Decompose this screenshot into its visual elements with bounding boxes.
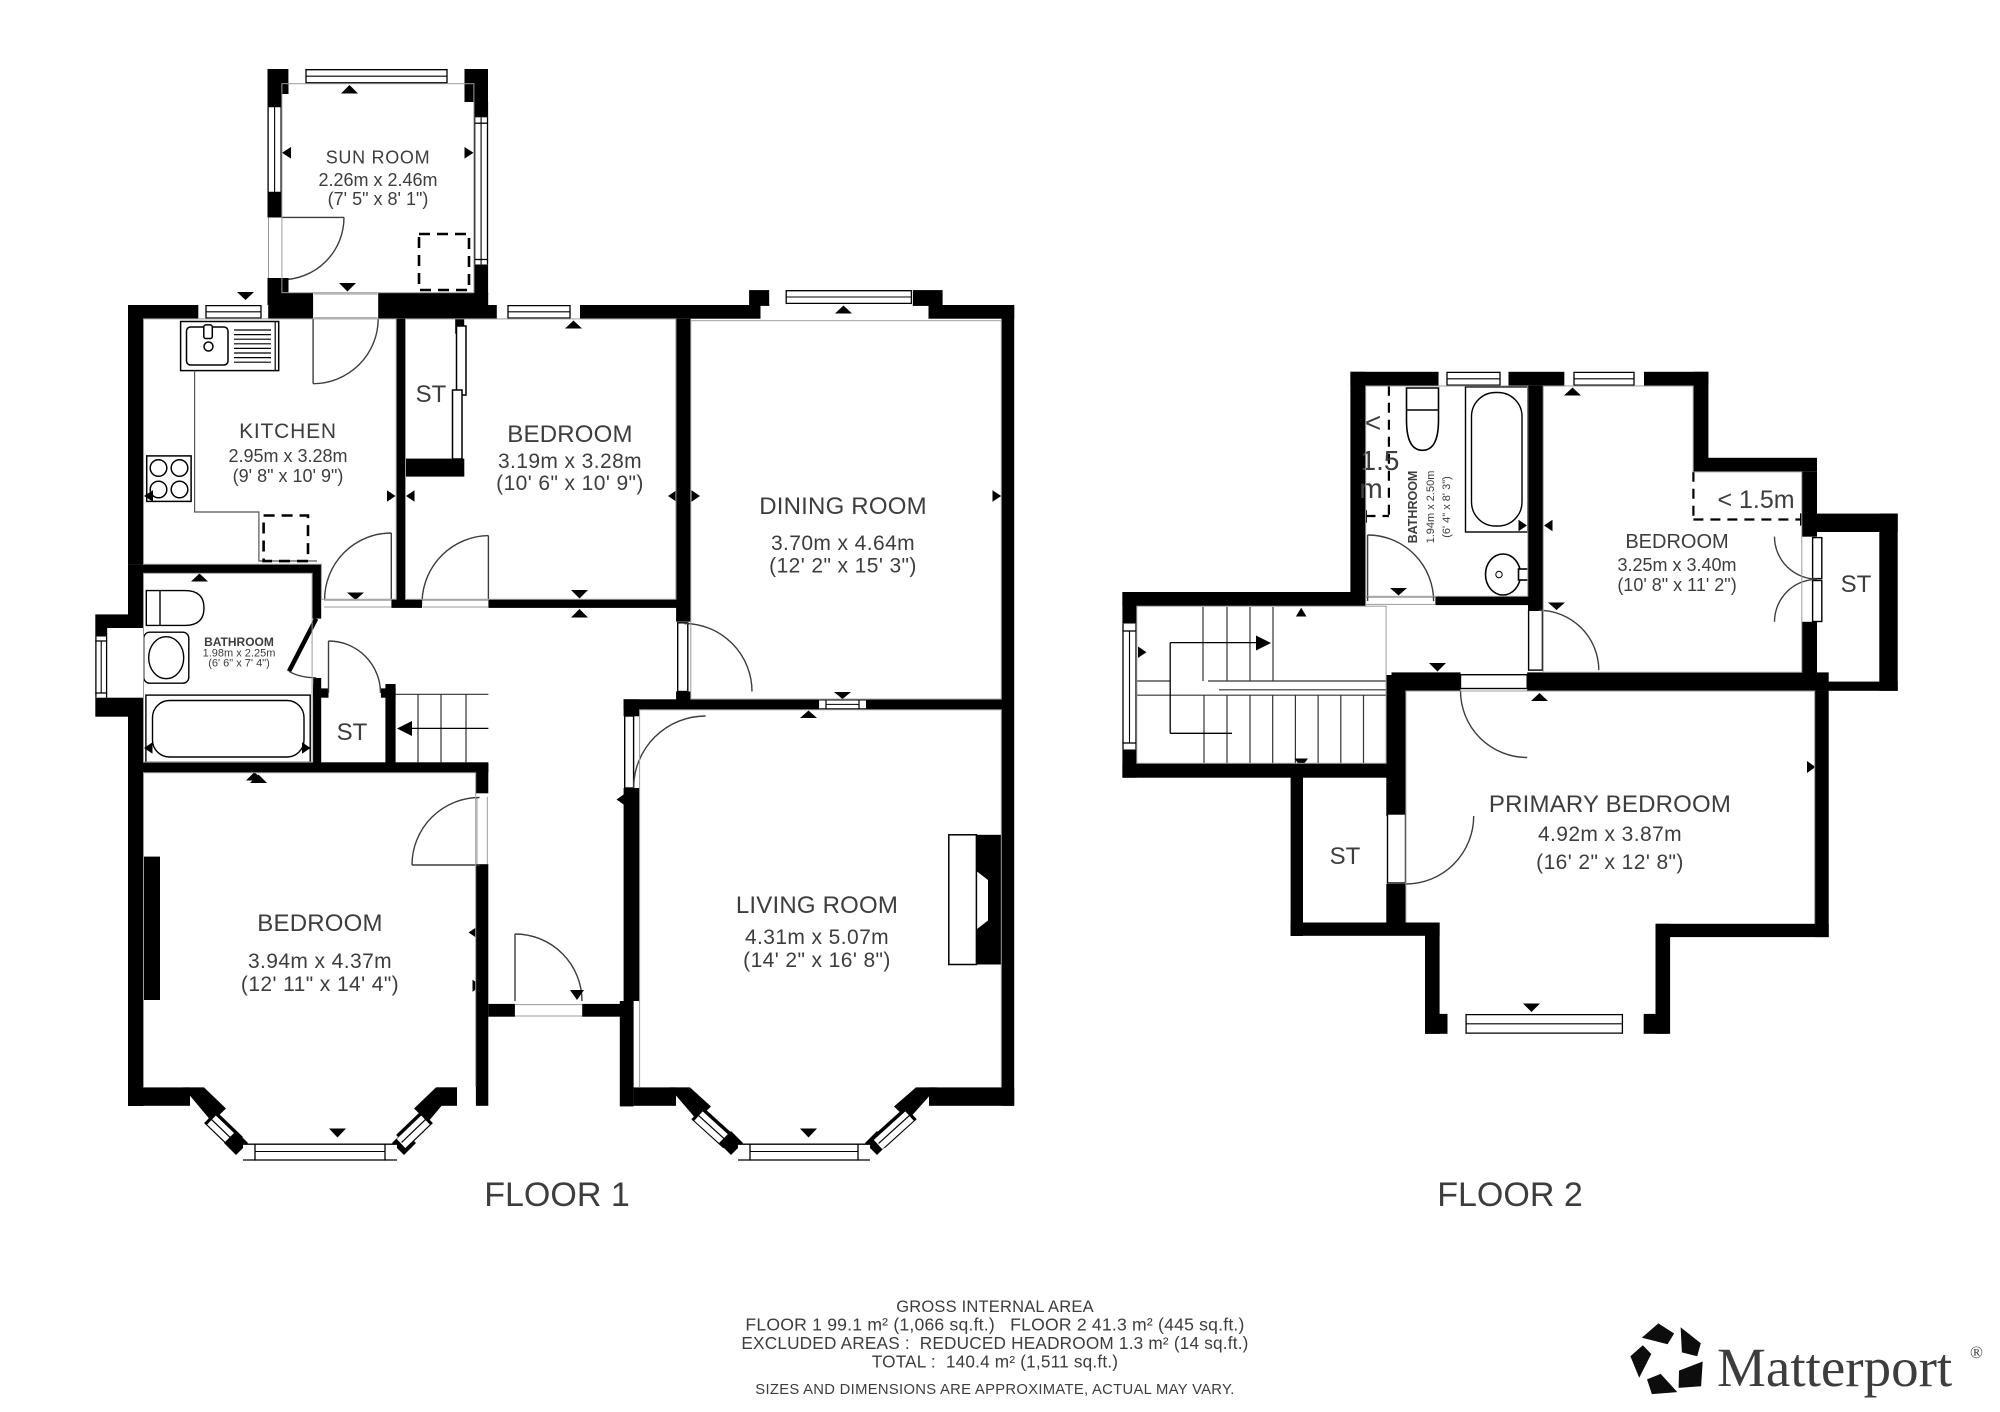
svg-text:LIVING ROOM: LIVING ROOM bbox=[736, 892, 898, 919]
svg-text:ST: ST bbox=[337, 719, 368, 746]
svg-text:3.19m x 3.28m: 3.19m x 3.28m bbox=[498, 450, 642, 473]
svg-text:(14' 2" x 16' 8"): (14' 2" x 16' 8") bbox=[743, 949, 891, 972]
svg-text:FLOOR 2: FLOOR 2 bbox=[1437, 1176, 1582, 1214]
svg-text:BEDROOM: BEDROOM bbox=[1625, 531, 1728, 553]
svg-text:(6' 6" x 7' 4"): (6' 6" x 7' 4") bbox=[208, 658, 270, 670]
svg-text:3.25m x 3.40m: 3.25m x 3.40m bbox=[1617, 555, 1736, 575]
svg-text:1.94m x 2.50m: 1.94m x 2.50m bbox=[1425, 471, 1437, 544]
svg-text:ST: ST bbox=[1841, 571, 1872, 598]
svg-text:FLOOR 1 99.1 m² (1,066 sq.ft.): FLOOR 1 99.1 m² (1,066 sq.ft.) FLOOR 2 4… bbox=[745, 1315, 1244, 1335]
svg-text:(9' 8" x 10' 9"): (9' 8" x 10' 9") bbox=[233, 466, 344, 486]
svg-text:SIZES AND DIMENSIONS ARE APPRO: SIZES AND DIMENSIONS ARE APPROXIMATE, AC… bbox=[755, 1382, 1234, 1398]
svg-text:4.92m x 3.87m: 4.92m x 3.87m bbox=[1538, 823, 1682, 846]
svg-text:®: ® bbox=[1970, 1343, 1983, 1362]
svg-text:FLOOR 1: FLOOR 1 bbox=[484, 1176, 629, 1214]
svg-text:ST: ST bbox=[416, 381, 447, 408]
svg-text:(12' 2" x 15' 3"): (12' 2" x 15' 3") bbox=[769, 555, 917, 578]
svg-text:(10' 8" x 11' 2"): (10' 8" x 11' 2") bbox=[1617, 575, 1736, 595]
svg-text:m: m bbox=[1359, 473, 1382, 504]
svg-text:<: < bbox=[1365, 407, 1381, 438]
svg-text:BEDROOM: BEDROOM bbox=[257, 910, 382, 937]
svg-text:(16' 2" x 12' 8"): (16' 2" x 12' 8") bbox=[1536, 851, 1684, 874]
svg-text:BATHROOM: BATHROOM bbox=[1406, 471, 1420, 544]
svg-text:2.26m x 2.46m: 2.26m x 2.46m bbox=[318, 170, 437, 190]
svg-text:DINING ROOM: DINING ROOM bbox=[759, 493, 927, 520]
svg-text:GROSS INTERNAL AREA: GROSS INTERNAL AREA bbox=[896, 1298, 1094, 1316]
svg-text:< 1.5m: < 1.5m bbox=[1717, 486, 1794, 514]
svg-text:SUN ROOM: SUN ROOM bbox=[326, 148, 431, 168]
svg-text:2.95m x 3.28m: 2.95m x 3.28m bbox=[228, 446, 347, 466]
svg-text:EXCLUDED AREAS : REDUCED HEAD: EXCLUDED AREAS : REDUCED HEADROOM 1.3 m²… bbox=[741, 1333, 1248, 1353]
svg-text:TOTAL : 140.4 m² (1,511 sq.ft: TOTAL : 140.4 m² (1,511 sq.ft.) bbox=[872, 1352, 1118, 1372]
svg-text:BEDROOM: BEDROOM bbox=[507, 421, 632, 448]
svg-text:(7' 5" x 8' 1"): (7' 5" x 8' 1") bbox=[328, 189, 429, 209]
svg-text:PRIMARY BEDROOM: PRIMARY BEDROOM bbox=[1489, 791, 1731, 818]
svg-text:ST: ST bbox=[1330, 843, 1361, 870]
svg-text:KITCHEN: KITCHEN bbox=[239, 420, 337, 443]
svg-text:(6' 4" x 8' 3"): (6' 4" x 8' 3") bbox=[1441, 476, 1453, 538]
svg-text:1.5: 1.5 bbox=[1361, 445, 1400, 476]
svg-text:3.70m x 4.64m: 3.70m x 4.64m bbox=[771, 532, 915, 555]
svg-text:(12' 11" x 14' 4"): (12' 11" x 14' 4") bbox=[241, 973, 399, 996]
svg-text:(10' 6" x 10' 9"): (10' 6" x 10' 9") bbox=[496, 472, 644, 495]
svg-text:3.94m x 4.37m: 3.94m x 4.37m bbox=[248, 950, 392, 973]
svg-text:Matterport: Matterport bbox=[1717, 1337, 1952, 1398]
svg-text:4.31m x 5.07m: 4.31m x 5.07m bbox=[745, 926, 889, 949]
